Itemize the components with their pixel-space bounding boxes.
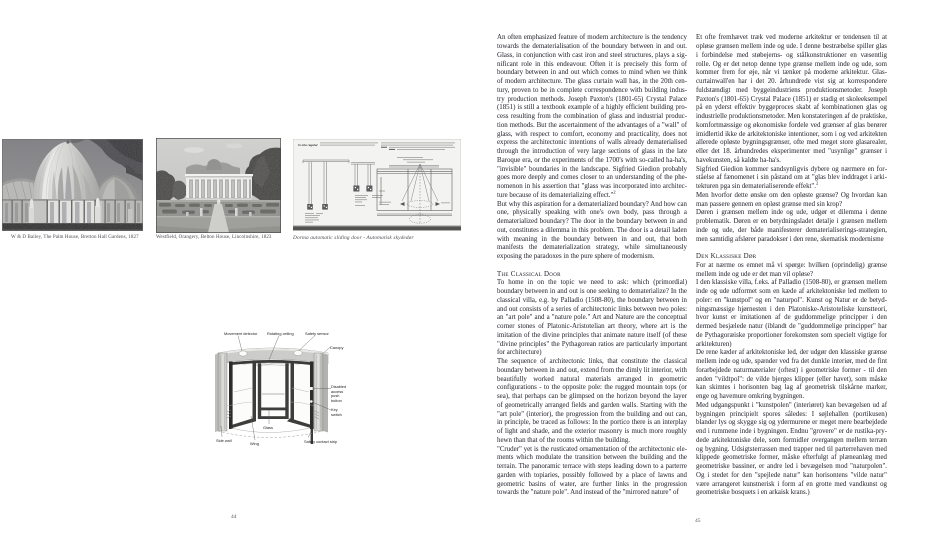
svg-text:In situ regular: In situ regular xyxy=(298,143,319,147)
